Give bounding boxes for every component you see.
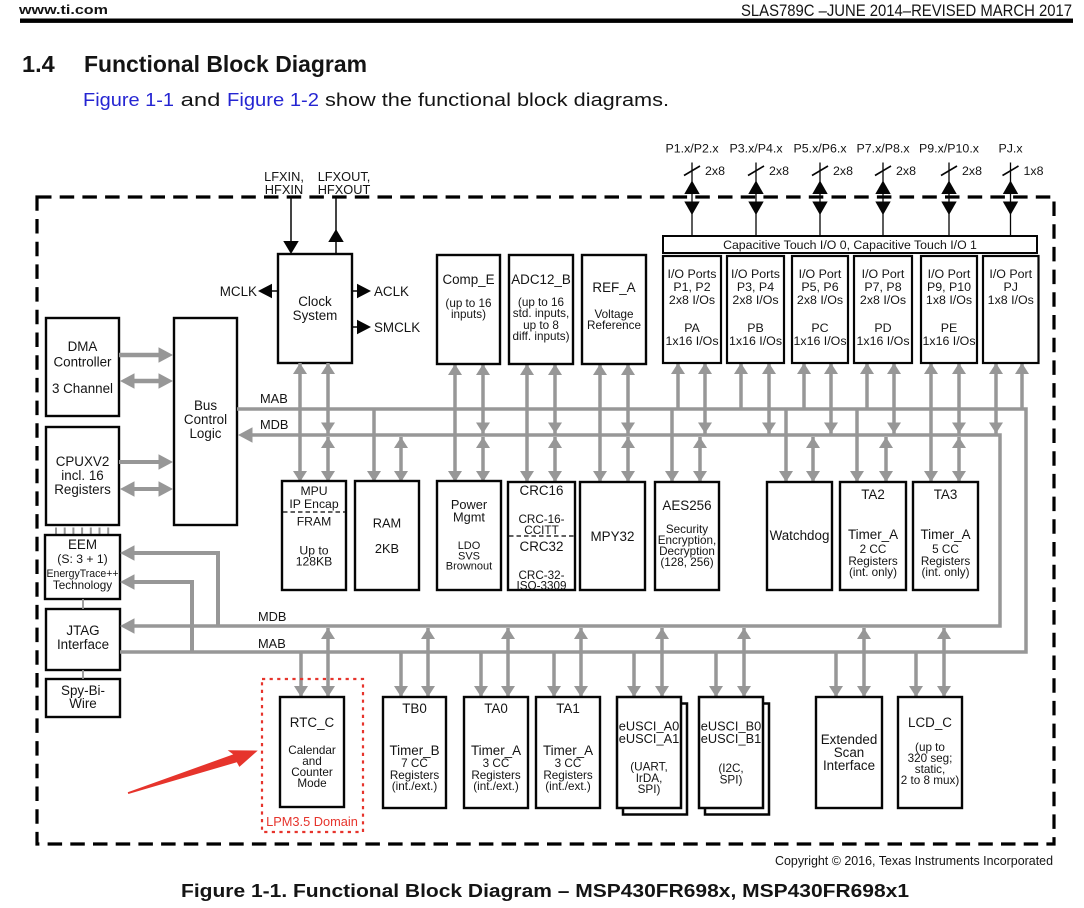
svg-text:Bus: Bus bbox=[194, 398, 217, 413]
svg-text:MAB: MAB bbox=[258, 636, 286, 651]
svg-text:TA3: TA3 bbox=[934, 487, 958, 502]
svg-text:MAB: MAB bbox=[260, 391, 288, 406]
svg-text:P7.x/P8.x: P7.x/P8.x bbox=[856, 142, 910, 156]
svg-text:Wire: Wire bbox=[69, 696, 97, 711]
svg-text:P9.x/P10.x: P9.x/P10.x bbox=[919, 142, 980, 156]
svg-text:(S: 3 + 1): (S: 3 + 1) bbox=[57, 552, 107, 566]
svg-text:2x8: 2x8 bbox=[769, 164, 789, 178]
svg-text:1x16 I/Os: 1x16 I/Os bbox=[729, 334, 782, 348]
svg-text:I/O Ports: I/O Ports bbox=[731, 267, 780, 281]
svg-text:System: System bbox=[293, 308, 338, 323]
svg-text:Interface: Interface bbox=[57, 637, 109, 652]
svg-text:P1.x/P2.x: P1.x/P2.x bbox=[665, 142, 719, 156]
svg-text:(int./ext.): (int./ext.) bbox=[392, 780, 438, 793]
svg-text:ISO-3309: ISO-3309 bbox=[516, 580, 566, 593]
svg-text:1x16 I/Os: 1x16 I/Os bbox=[793, 334, 846, 348]
svg-text:CRC32: CRC32 bbox=[520, 539, 564, 554]
svg-text:MPY32: MPY32 bbox=[591, 529, 635, 544]
svg-text:2x8: 2x8 bbox=[896, 164, 916, 178]
svg-text:2x8 I/Os: 2x8 I/Os bbox=[797, 293, 843, 307]
svg-text:I/O Port: I/O Port bbox=[799, 267, 842, 281]
svg-text:RTC_C: RTC_C bbox=[290, 715, 335, 730]
svg-text:2x8 I/Os: 2x8 I/Os bbox=[732, 293, 778, 307]
svg-text:ACLK: ACLK bbox=[374, 284, 409, 299]
svg-text:P3.x/P4.x: P3.x/P4.x bbox=[729, 142, 783, 156]
svg-text:Logic: Logic bbox=[189, 426, 221, 441]
svg-text:1.4: 1.4 bbox=[22, 51, 55, 77]
svg-text:PB: PB bbox=[747, 321, 764, 335]
svg-text:PC: PC bbox=[811, 321, 828, 335]
svg-text:EEM: EEM bbox=[68, 537, 97, 552]
svg-text:Copyright © 2016, Texas Instru: Copyright © 2016, Texas Instruments Inco… bbox=[775, 854, 1053, 868]
svg-text:Timer_A: Timer_A bbox=[848, 527, 898, 542]
svg-text:PE: PE bbox=[941, 321, 958, 335]
svg-text:AES256: AES256 bbox=[662, 498, 711, 513]
svg-text:1x8 I/Os: 1x8 I/Os bbox=[988, 293, 1034, 307]
svg-text:HFXOUT: HFXOUT bbox=[318, 182, 371, 197]
svg-text:ADC12_B: ADC12_B bbox=[511, 272, 571, 287]
svg-text:128KB: 128KB bbox=[296, 555, 333, 569]
svg-text:Controller: Controller bbox=[53, 355, 112, 370]
svg-text:TB0: TB0 bbox=[402, 701, 427, 716]
svg-text:Figure 1-1. Functional Block D: Figure 1-1. Functional Block Diagram – M… bbox=[181, 880, 909, 901]
svg-text:PJ: PJ bbox=[1004, 280, 1018, 294]
svg-text:Timer_A: Timer_A bbox=[471, 743, 521, 758]
svg-text:1x16 I/Os: 1x16 I/Os bbox=[922, 334, 975, 348]
svg-text:TA2: TA2 bbox=[861, 487, 885, 502]
svg-text:1x16 I/Os: 1x16 I/Os bbox=[856, 334, 909, 348]
svg-text:2x8 I/Os: 2x8 I/Os bbox=[860, 293, 906, 307]
svg-text:Timer_B: Timer_B bbox=[389, 743, 439, 758]
svg-text:Timer_A: Timer_A bbox=[920, 527, 970, 542]
svg-text:inputs): inputs) bbox=[451, 308, 486, 321]
svg-text:Capacitive Touch I/O 0, Capaci: Capacitive Touch I/O 0, Capacitive Touch… bbox=[723, 238, 977, 252]
svg-text:eUSCI_A1: eUSCI_A1 bbox=[619, 731, 679, 746]
svg-text:(int./ext.): (int./ext.) bbox=[545, 780, 591, 793]
svg-text:1x8 I/Os: 1x8 I/Os bbox=[926, 293, 972, 307]
svg-text:diff. inputs): diff. inputs) bbox=[513, 330, 570, 343]
svg-text:P7, P8: P7, P8 bbox=[864, 280, 901, 294]
svg-text:SPI): SPI) bbox=[638, 783, 661, 796]
svg-text:Comp_E: Comp_E bbox=[442, 272, 494, 287]
svg-text:HFXIN: HFXIN bbox=[265, 182, 303, 197]
svg-text:Brownout: Brownout bbox=[446, 561, 492, 573]
svg-text:IP Encap: IP Encap bbox=[289, 497, 338, 511]
svg-text:Figure 1-1 and Figure 1-2 show: Figure 1-1 and Figure 1-2 show the funct… bbox=[83, 90, 669, 110]
svg-text:P9, P10: P9, P10 bbox=[927, 280, 971, 294]
svg-text:MCLK: MCLK bbox=[220, 284, 257, 299]
svg-text:PJ.x: PJ.x bbox=[998, 142, 1023, 156]
svg-text:2KB: 2KB bbox=[375, 541, 399, 556]
svg-text:2x8: 2x8 bbox=[962, 164, 982, 178]
svg-text:I/O Ports: I/O Ports bbox=[668, 267, 717, 281]
svg-text:P5, P6: P5, P6 bbox=[801, 280, 838, 294]
svg-text:P5.x/P6.x: P5.x/P6.x bbox=[793, 142, 847, 156]
svg-text:MDB: MDB bbox=[260, 417, 288, 432]
svg-text:TA0: TA0 bbox=[484, 701, 508, 716]
svg-text:Watchdog: Watchdog bbox=[770, 528, 830, 543]
svg-text:eUSCI_B1: eUSCI_B1 bbox=[701, 731, 761, 746]
svg-text:Interface: Interface bbox=[823, 758, 875, 773]
svg-text:SLAS789C –JUNE 2014–REVISED MA: SLAS789C –JUNE 2014–REVISED MARCH 2017 bbox=[741, 2, 1072, 20]
svg-text:3 Channel: 3 Channel bbox=[52, 381, 113, 396]
svg-text:I/O Port: I/O Port bbox=[928, 267, 971, 281]
svg-text:Timer_A: Timer_A bbox=[543, 743, 593, 758]
svg-text:1x8: 1x8 bbox=[1024, 164, 1044, 178]
svg-text:2x8: 2x8 bbox=[833, 164, 853, 178]
svg-text:I/O Port: I/O Port bbox=[862, 267, 905, 281]
svg-text:2x8: 2x8 bbox=[705, 164, 725, 178]
svg-text:PA: PA bbox=[684, 321, 700, 335]
svg-text:Clock: Clock bbox=[298, 294, 332, 309]
svg-text:(int. only): (int. only) bbox=[849, 566, 897, 579]
svg-text:Mode: Mode bbox=[297, 777, 326, 790]
svg-text:LCD_C: LCD_C bbox=[908, 715, 952, 730]
svg-text:(int./ext.): (int./ext.) bbox=[473, 780, 519, 793]
svg-text:FRAM: FRAM bbox=[297, 515, 332, 529]
svg-text:SPI): SPI) bbox=[720, 774, 743, 787]
svg-text:Control: Control bbox=[184, 412, 227, 427]
svg-text:CRC16: CRC16 bbox=[520, 483, 564, 498]
svg-text:JTAG: JTAG bbox=[66, 623, 99, 638]
svg-text:Registers: Registers bbox=[54, 482, 111, 497]
svg-text:P1, P2: P1, P2 bbox=[673, 280, 710, 294]
svg-text:CPUXV2: CPUXV2 bbox=[56, 454, 110, 469]
svg-text:CCITT: CCITT bbox=[524, 524, 558, 537]
svg-text:2x8 I/Os: 2x8 I/Os bbox=[669, 293, 715, 307]
svg-text:Reference: Reference bbox=[587, 319, 641, 332]
svg-text:incl. 16: incl. 16 bbox=[61, 468, 103, 483]
svg-text:SMCLK: SMCLK bbox=[374, 320, 420, 335]
svg-text:PD: PD bbox=[874, 321, 891, 335]
svg-text:DMA: DMA bbox=[68, 339, 98, 354]
svg-text:MPU: MPU bbox=[300, 484, 327, 498]
svg-text:I/O Port: I/O Port bbox=[989, 267, 1032, 281]
svg-text:(128, 256): (128, 256) bbox=[660, 556, 713, 569]
svg-text:Functional Block Diagram: Functional Block Diagram bbox=[84, 51, 367, 77]
svg-text:TA1: TA1 bbox=[556, 701, 580, 716]
svg-text:Technology: Technology bbox=[53, 579, 112, 592]
svg-text:REF_A: REF_A bbox=[592, 280, 635, 295]
svg-text:P3, P4: P3, P4 bbox=[737, 280, 774, 294]
svg-text:MDB: MDB bbox=[258, 609, 286, 624]
svg-text:1x16 I/Os: 1x16 I/Os bbox=[665, 334, 718, 348]
svg-text:RAM: RAM bbox=[373, 516, 401, 531]
svg-text:LPM3.5 Domain: LPM3.5 Domain bbox=[266, 814, 358, 829]
svg-text:2 to 8 mux): 2 to 8 mux) bbox=[901, 774, 960, 787]
svg-text:(int. only): (int. only) bbox=[921, 566, 969, 579]
svg-text:Mgmt: Mgmt bbox=[453, 510, 485, 525]
svg-text:www.ti.com: www.ti.com bbox=[18, 2, 108, 17]
